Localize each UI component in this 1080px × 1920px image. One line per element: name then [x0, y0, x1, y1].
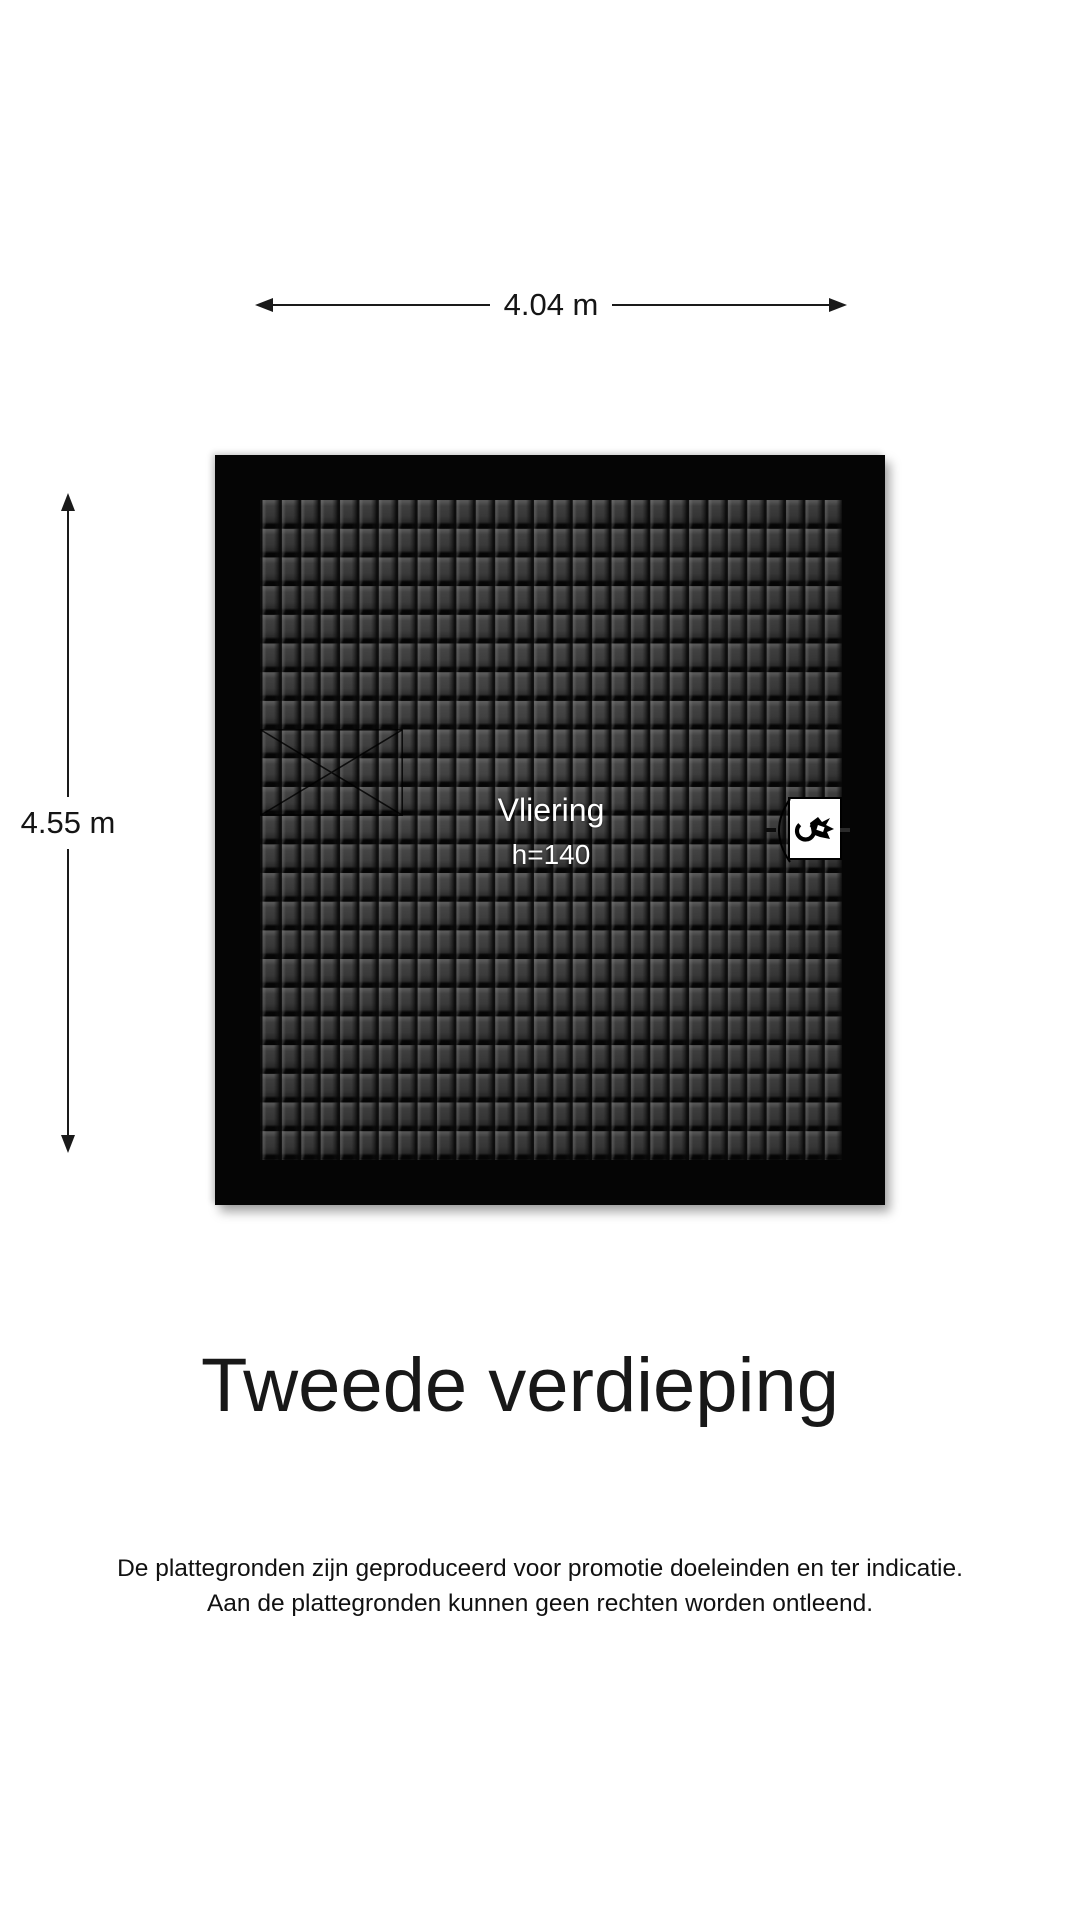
disclaimer-line-1: De plattegronden zijn geproduceerd voor …: [117, 1555, 963, 1582]
connector-dash: [766, 828, 776, 832]
width-dimension: 4.04 m: [255, 289, 847, 321]
boiler-arc-line: [775, 798, 791, 863]
dimension-line: [67, 849, 69, 1135]
floorplan-outline: Vliering h=140: [215, 455, 885, 1205]
tap-icon: [794, 813, 836, 845]
floorplan-page: 4.04 m 4.55 m Vliering h=140: [0, 0, 1080, 1920]
floor-title: Tweede verdieping: [0, 1342, 1040, 1429]
arrow-up-icon: [61, 493, 75, 511]
disclaimer-line-2: Aan de plattegronden kunnen geen rechten…: [207, 1590, 873, 1617]
boiler-unit: [788, 797, 842, 860]
connector-dash: [840, 828, 850, 832]
room-name-label: Vliering: [260, 792, 842, 828]
roof-tile-area: Vliering h=140: [260, 500, 842, 1160]
height-dimension-label: 4.55 m: [21, 797, 116, 849]
dimension-line: [612, 304, 829, 306]
dimension-line: [273, 304, 490, 306]
arrow-down-icon: [61, 1135, 75, 1153]
arrow-left-icon: [255, 298, 273, 312]
disclaimer-text: De plattegronden zijn geproduceerd voor …: [0, 1551, 1080, 1621]
room-height-label: h=140: [260, 838, 842, 872]
dimension-line: [67, 511, 69, 797]
arrow-right-icon: [829, 298, 847, 312]
width-dimension-label: 4.04 m: [490, 287, 613, 323]
height-dimension: 4.55 m: [18, 493, 118, 1153]
